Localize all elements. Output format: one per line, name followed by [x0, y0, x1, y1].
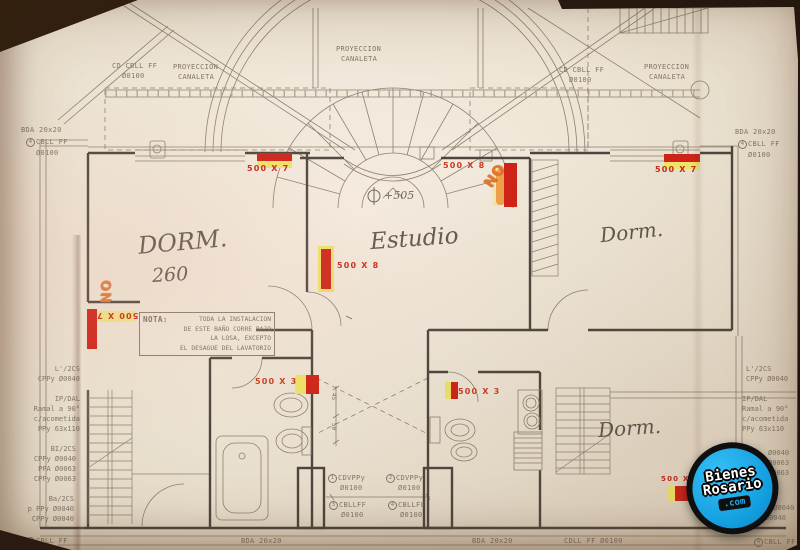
label-cbllff-3-dia: Ø0100 [341, 511, 364, 519]
label-bi2cs-left: BI/2CS CPPy Ø0040 PPA Ø0063 CPPy Ø0063 [6, 444, 76, 484]
label-cbll-left-edge: 4CBLL FF [26, 138, 68, 147]
label-cbll-bottom-left: 4CBLL FF [26, 537, 68, 546]
label-cbllff-4: 4CBLLFF [388, 501, 425, 510]
nota-line-4: EL DESAGUE DEL LAVATORIO [180, 345, 271, 352]
no-annotation-left: NO [99, 280, 114, 304]
marker-red [451, 382, 458, 399]
left-bathroom-fixtures [216, 393, 311, 520]
label-canaleta-left: CANALETA [178, 73, 214, 81]
bathtub-left [216, 436, 268, 520]
sink-left [274, 393, 308, 417]
top-right-staircase [620, 8, 708, 33]
label-cbllff-3: 3CBLLFF [329, 501, 366, 510]
duct-size-bath-right: 500 X 3 [458, 387, 500, 396]
label-cdvppy-2: 2CDVPPy [386, 474, 423, 483]
duct-size-dorm-top: 500 X 7 [247, 164, 289, 173]
label-proyeccion-right: PROYECCION [644, 63, 689, 71]
vanity-right [518, 390, 542, 434]
nota-box: NOTA: TODA LA INSTALACION DE ESTE BAÑO C… [139, 312, 275, 356]
floor-plan-linework [0, 0, 800, 550]
left-staircase [88, 390, 132, 524]
label-cbll-bottom-right: 4CBLL FF [754, 538, 796, 547]
level-mark-symbol [368, 187, 380, 205]
label-l2cs-right: L'/2CS CPPy Ø0040 [746, 364, 788, 384]
room-name-dorm-bottom: Dorm. [597, 414, 661, 442]
label-cbll-right-edge-dia: Ø0100 [748, 151, 771, 159]
label-cbll-top-left: CD CBLL FF [112, 62, 157, 70]
nota-line-1: TODA LA INSTALACION [199, 316, 271, 323]
level-mark-value: +505 [384, 189, 414, 202]
toilet-right [445, 419, 475, 441]
nota-line-2: DE ESTE BAÑO CORRE BAJO [184, 326, 271, 333]
label-cbll-left-edge-dia: Ø0100 [36, 149, 59, 157]
duct-size-bath-left: 500 X 3 [255, 377, 297, 386]
label-cdvppy-2-dia: Ø0100 [398, 484, 421, 492]
watermark-logo: Bienes Rosario .com [681, 436, 790, 548]
marker-red [257, 153, 292, 161]
room-number-dorm-left: 260 [151, 263, 188, 287]
label-bda-left: BDA 20x20 [21, 126, 62, 134]
label-cbll-top-left-dia: Ø0100 [122, 72, 145, 80]
label-l2cs-left: L'/2CS CPPy Ø0040 [14, 364, 80, 384]
nota-line-3: LA LOSA, EXCEPTO [210, 335, 271, 342]
duct-size-estudio-top: 500 X 8 [443, 161, 485, 170]
marker-red [664, 154, 700, 162]
duct-size-estudio-left: 500 X 8 [337, 261, 379, 270]
toilet-left [276, 429, 308, 453]
label-proyeccion-left: PROYECCION [173, 63, 218, 71]
marker-yellow [667, 486, 675, 501]
label-cdvppy-1: 1CDVPPy [328, 474, 365, 483]
label-canaleta-center: CANALETA [341, 55, 377, 63]
marker-yellow [445, 382, 451, 399]
label-cbll-right-edge: 4CBLL FF [738, 140, 780, 149]
label-ba2cs-left: Ba/2CS p PPy Ø0040 CPPy Ø0040 [2, 494, 74, 524]
blueprint-photo: CD CBLL FF Ø0100 PROYECCION CANALETA PRO… [0, 0, 800, 550]
canaleta-projection-outline [105, 8, 588, 434]
label-ipdal-left: IP/DAL Ramal a 90° c/acometida PPy 63x11… [8, 394, 80, 434]
label-canaleta-right: CANALETA [649, 73, 685, 81]
bidet-right [451, 443, 477, 461]
logo-badge: .com [718, 495, 751, 511]
dim-50: 50 [330, 423, 337, 430]
closet-hatch [532, 160, 558, 276]
label-bda-bottom-2: BDA 20x20 [472, 537, 513, 545]
nota-title: NOTA: [143, 315, 168, 325]
duct-size-left-wall: 500 X 7 [96, 311, 138, 320]
label-ipdal-right: IP/DAL Ramal a 90° c/acometida PPy 63x11… [742, 394, 788, 434]
right-bathroom-fixtures [430, 390, 542, 470]
duct-size-dorm-right: 500 X 7 [655, 165, 697, 174]
label-bda-bottom-1: BDA 20x20 [241, 537, 282, 545]
marker-red [321, 249, 331, 289]
label-bda-right: BDA 20x20 [735, 128, 776, 136]
label-cbllff-4-dia: Ø0100 [400, 511, 423, 519]
label-cbll-top-right: CD CBLL FF [559, 66, 604, 74]
label-cdll-bottom: CDLL FF Ø0100 [564, 537, 623, 545]
label-cdvppy-1-dia: Ø0100 [340, 484, 363, 492]
marker-red [306, 375, 319, 394]
dim-45: 45 [330, 393, 337, 400]
label-proyeccion-center: PROYECCION [336, 45, 381, 53]
logo-circle: Bienes Rosario .com [681, 436, 785, 540]
label-cbll-top-right-dia: Ø0100 [569, 76, 592, 84]
